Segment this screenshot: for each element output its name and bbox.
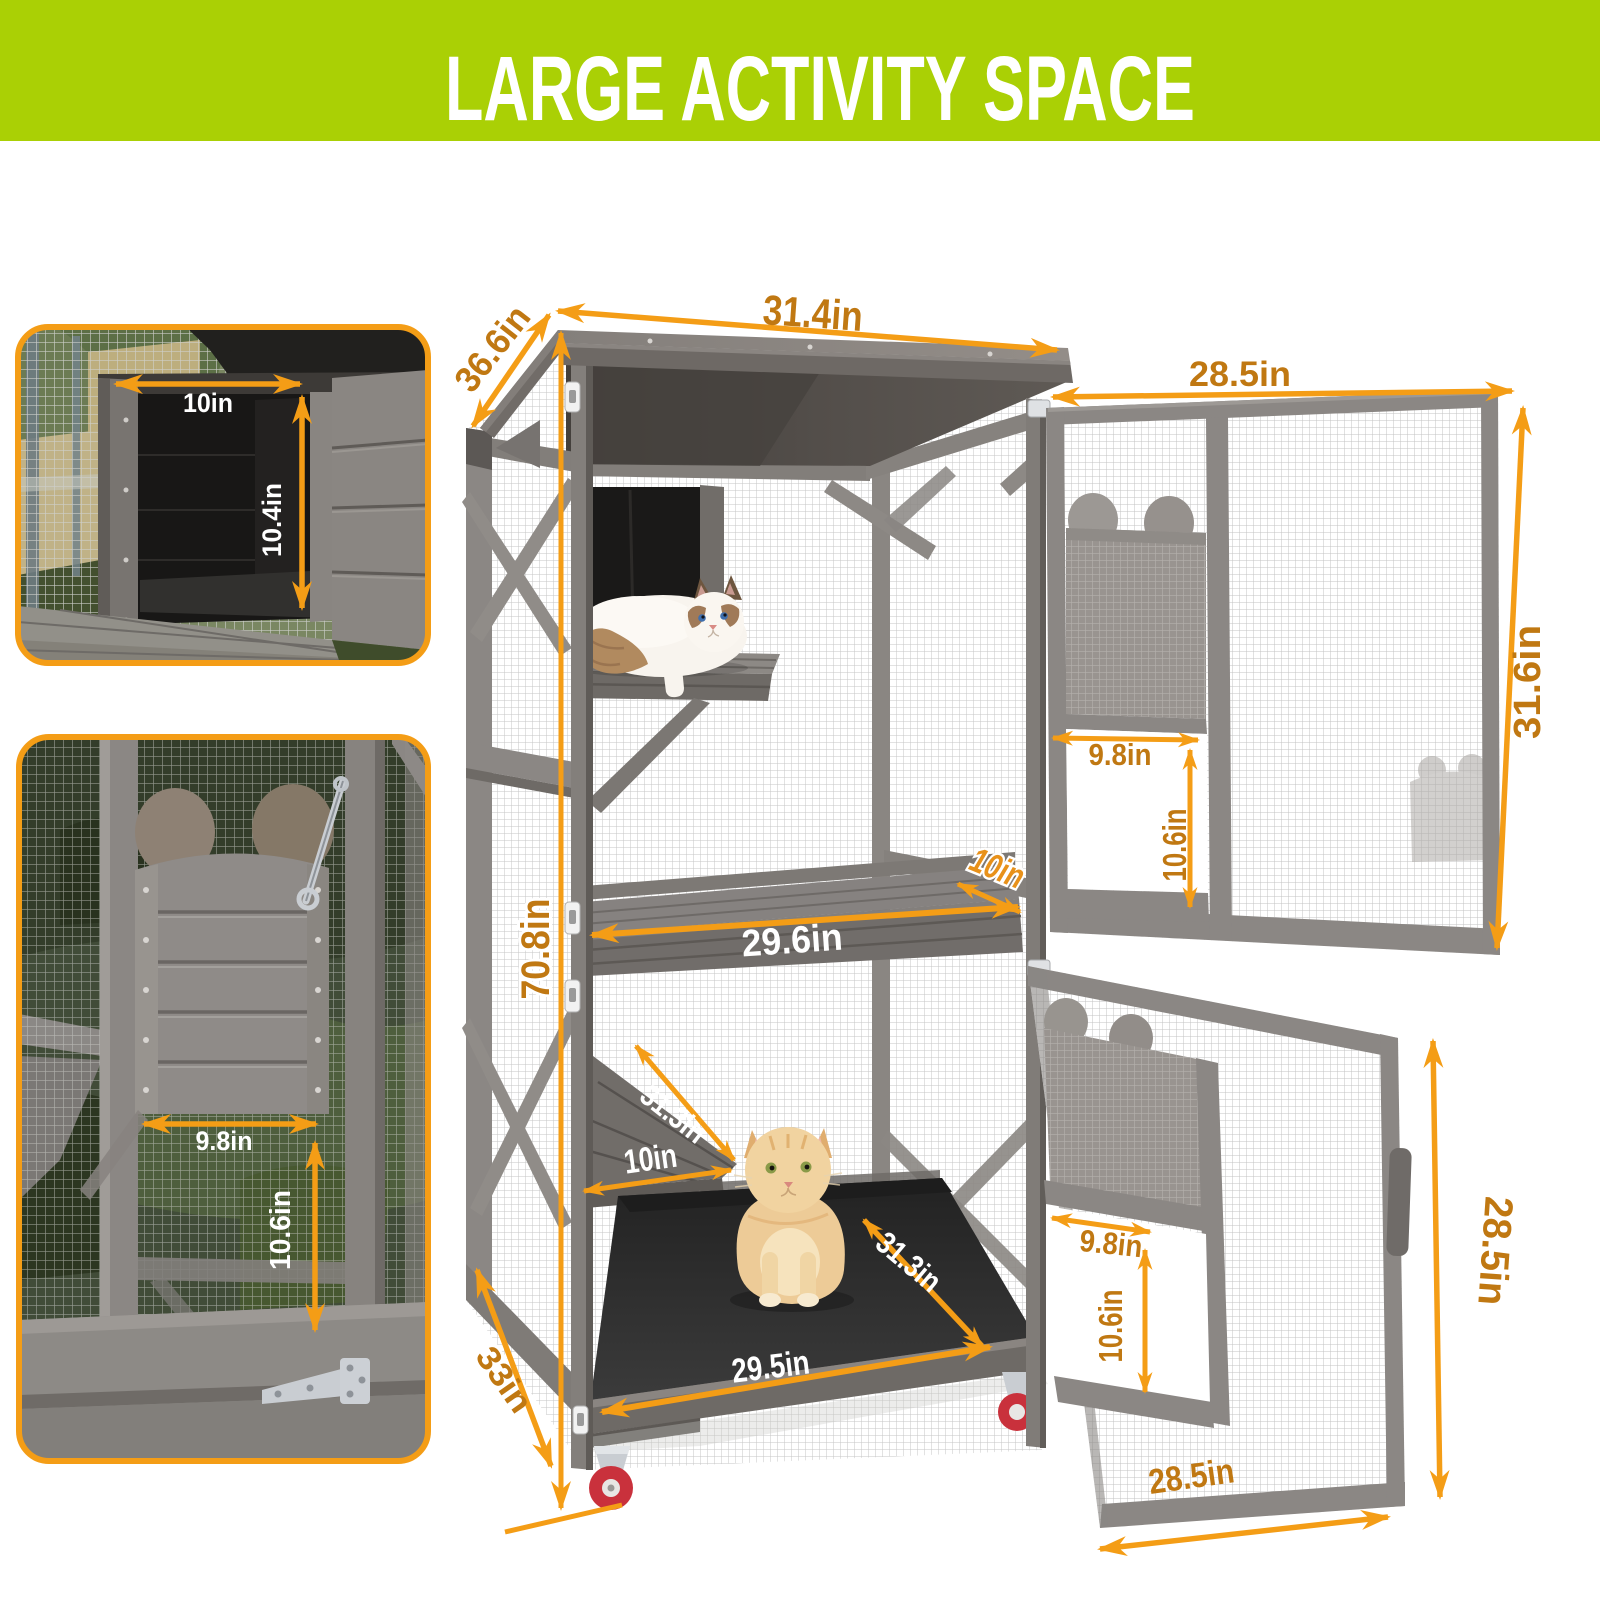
svg-text:70.8in: 70.8in [514, 899, 558, 1000]
svg-text:9.8in: 9.8in [1078, 1223, 1144, 1264]
svg-text:29.6in: 29.6in [740, 917, 844, 966]
svg-text:10in: 10in [622, 1137, 680, 1182]
svg-text:9.8in: 9.8in [1089, 737, 1152, 772]
svg-text:10in: 10in [183, 388, 233, 418]
svg-text:10.4in: 10.4in [257, 483, 287, 557]
svg-text:10.6in: 10.6in [265, 1190, 297, 1270]
svg-text:31.6in: 31.6in [1507, 625, 1549, 739]
svg-text:28.5in: 28.5in [1469, 1195, 1520, 1307]
svg-text:31.4in: 31.4in [761, 286, 864, 340]
svg-text:10.6in: 10.6in [1156, 809, 1193, 882]
svg-text:9.8in: 9.8in [196, 1126, 253, 1156]
svg-text:10.6in: 10.6in [1092, 1290, 1129, 1363]
svg-text:28.5in: 28.5in [1189, 355, 1291, 394]
svg-text:LARGE ACTIVITY SPACE: LARGE ACTIVITY SPACE [445, 38, 1195, 140]
